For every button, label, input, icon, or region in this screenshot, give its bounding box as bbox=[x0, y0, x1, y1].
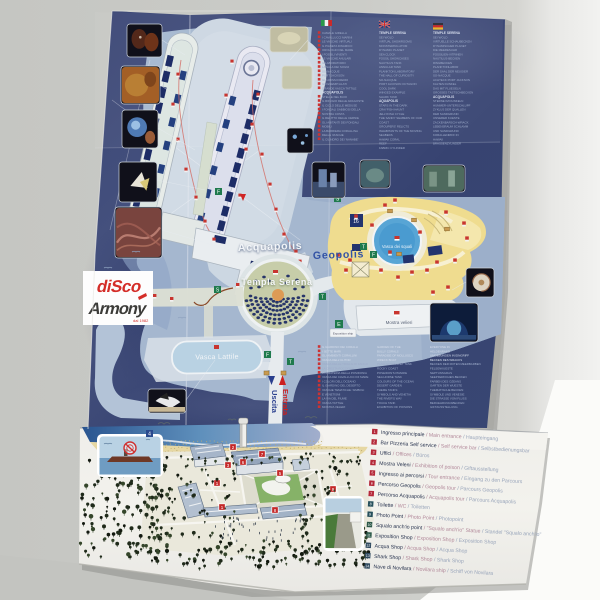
svg-text:E: E bbox=[337, 322, 341, 328]
svg-text:diSco: diSco bbox=[95, 276, 143, 296]
svg-text:16: 16 bbox=[353, 219, 359, 225]
svg-text:MOSTRA VELERI: MOSTRA VELERI bbox=[322, 405, 345, 409]
svg-text:Vasca Lattile: Vasca Lattile bbox=[195, 354, 239, 362]
svg-text:Armony: Armony bbox=[87, 299, 150, 318]
svg-text:10: 10 bbox=[367, 523, 371, 527]
svg-text:EXHIBITION OF POISONS: EXHIBITION OF POISONS bbox=[377, 405, 412, 409]
svg-text:Vasca dei squali: Vasca dei squali bbox=[382, 244, 412, 249]
svg-text:F: F bbox=[266, 353, 269, 359]
svg-text:Mostra velieri: Mostra velieri bbox=[386, 320, 413, 325]
svg-text:IL CILINDRO DEI 'NANABE': IL CILINDRO DEI 'NANABE' bbox=[322, 137, 359, 141]
svg-text:Geopolis: Geopolis bbox=[313, 248, 365, 262]
svg-text:14: 14 bbox=[365, 564, 369, 568]
svg-text:F: F bbox=[217, 190, 220, 196]
svg-text:T: T bbox=[321, 295, 324, 301]
svg-text:11: 11 bbox=[367, 533, 371, 537]
svg-text:BRASSENZYLINDER: BRASSENZYLINDER bbox=[433, 142, 461, 146]
svg-text:GIFTAUSSTELLUNG: GIFTAUSSTELLUNG bbox=[430, 405, 458, 409]
svg-text:Entrata: Entrata bbox=[281, 389, 290, 416]
svg-text:6: 6 bbox=[371, 482, 373, 486]
svg-text:2: 2 bbox=[373, 440, 375, 444]
svg-text:5: 5 bbox=[371, 471, 373, 475]
svg-text:4: 4 bbox=[372, 461, 374, 465]
svg-text:FABRIC CYLINDER: FABRIC CYLINDER bbox=[379, 146, 405, 150]
svg-text:F: F bbox=[372, 253, 375, 259]
svg-text:12: 12 bbox=[366, 543, 370, 547]
svg-text:8: 8 bbox=[370, 502, 372, 506]
svg-text:T: T bbox=[289, 360, 292, 366]
svg-text:13: 13 bbox=[366, 554, 370, 558]
svg-text:dal 1982: dal 1982 bbox=[133, 318, 149, 323]
svg-text:4: 4 bbox=[148, 432, 151, 438]
svg-text:Uscita: Uscita bbox=[270, 390, 279, 414]
svg-text:Templa Serena: Templa Serena bbox=[241, 277, 313, 287]
svg-text:7: 7 bbox=[370, 492, 372, 496]
svg-text:Acquapolis: Acquapolis bbox=[238, 240, 303, 254]
svg-text:1: 1 bbox=[374, 430, 376, 434]
svg-text:Exposition ship: Exposition ship bbox=[333, 332, 354, 336]
svg-text:9: 9 bbox=[369, 513, 371, 517]
svg-text:3: 3 bbox=[372, 450, 374, 454]
